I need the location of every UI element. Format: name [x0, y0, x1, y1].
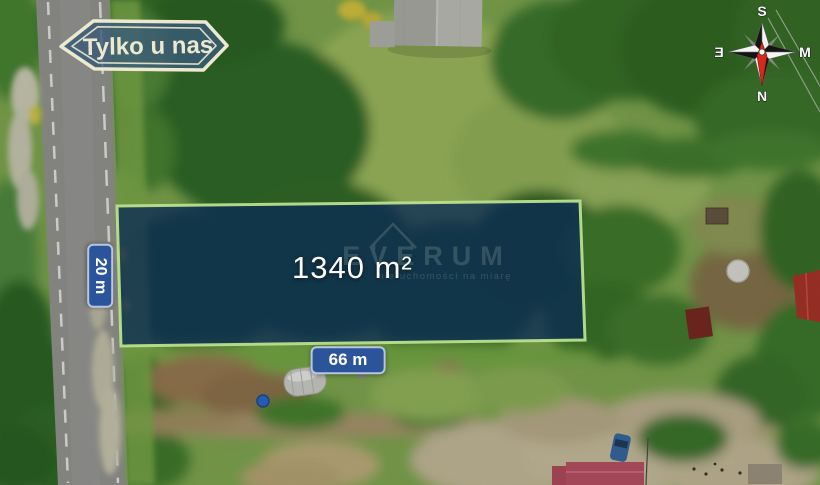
exclusive-badge: Tylko u nas [55, 11, 234, 78]
compass-label-bottom: N [757, 88, 767, 104]
compass-rose: S M N Ǝ [708, 0, 816, 108]
plot-frontage-label: 66 m [311, 346, 386, 374]
plot-area-label: 1340 m² [292, 250, 413, 286]
aerial-listing-photo: EVERUM nieruchomości na miarę 1340 m² 20… [0, 0, 820, 485]
compass-label-top: S [757, 3, 766, 19]
badge-label: Tylko u nas [83, 32, 214, 61]
compass-label-right: M [799, 44, 811, 60]
plot-depth-label: 20 m [87, 244, 113, 308]
compass-label-left: Ǝ [714, 44, 723, 60]
compass-hub [759, 49, 765, 55]
